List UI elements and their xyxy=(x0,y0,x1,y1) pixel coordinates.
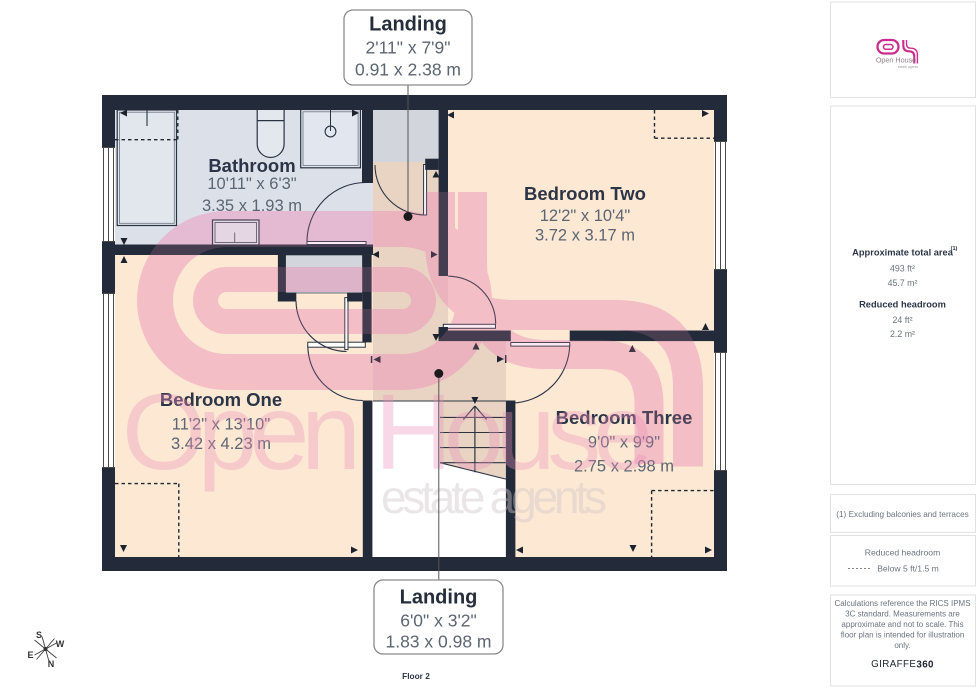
svg-text:2.2 m²: 2.2 m² xyxy=(890,329,915,339)
svg-text:Bathroom: Bathroom xyxy=(208,155,295,176)
svg-text:Calculations reference the RIC: Calculations reference the RICS IPMS xyxy=(834,599,970,608)
svg-text:Landing: Landing xyxy=(400,587,478,609)
svg-text:Reduced headroom: Reduced headroom xyxy=(865,548,941,558)
svg-text:S: S xyxy=(36,630,42,640)
svg-text:3C standard. Measurements are: 3C standard. Measurements are xyxy=(845,610,960,619)
svg-text:estate agents: estate agents xyxy=(898,65,919,69)
svg-text:(1): (1) xyxy=(951,246,958,252)
svg-text:N: N xyxy=(48,659,55,669)
svg-text:only.: only. xyxy=(894,641,910,650)
svg-text:GIRAFFE360: GIRAFFE360 xyxy=(871,659,934,670)
svg-text:E: E xyxy=(27,650,33,660)
svg-text:Open House: Open House xyxy=(876,56,916,65)
svg-text:Bedroom Two: Bedroom Two xyxy=(524,183,646,204)
svg-text:floor plan is intended for ill: floor plan is intended for illustration xyxy=(841,631,965,640)
svg-text:2'11" x 7'9": 2'11" x 7'9" xyxy=(366,38,451,58)
svg-text:3.72 x 3.17 m: 3.72 x 3.17 m xyxy=(535,227,635,245)
svg-text:10'11" x 6'3": 10'11" x 6'3" xyxy=(207,175,296,193)
svg-text:approximate and not to scale.: approximate and not to scale. This xyxy=(841,620,963,629)
svg-text:(1) Excluding balconies and te: (1) Excluding balconies and terraces xyxy=(836,510,968,519)
svg-text:6'0" x 3'2": 6'0" x 3'2" xyxy=(400,611,477,631)
svg-text:Reduced headroom: Reduced headroom xyxy=(859,300,946,310)
svg-text:1.83 x 0.98 m: 1.83 x 0.98 m xyxy=(385,632,491,652)
svg-text:estate agents: estate agents xyxy=(381,471,607,523)
svg-text:Below 5 ft/1.5 m: Below 5 ft/1.5 m xyxy=(877,564,939,574)
svg-text:493 ft²: 493 ft² xyxy=(890,264,915,274)
svg-text:Approximate total area: Approximate total area xyxy=(852,248,954,258)
svg-text:24 ft²: 24 ft² xyxy=(892,315,912,325)
svg-text:Floor 2: Floor 2 xyxy=(402,671,430,681)
svg-text:0.91 x 2.38 m: 0.91 x 2.38 m xyxy=(355,60,461,80)
svg-text:Landing: Landing xyxy=(369,14,447,36)
svg-text:W: W xyxy=(56,639,65,649)
svg-text:12'2" x 10'4": 12'2" x 10'4" xyxy=(540,207,631,225)
svg-text:45.7 m²: 45.7 m² xyxy=(888,278,918,288)
